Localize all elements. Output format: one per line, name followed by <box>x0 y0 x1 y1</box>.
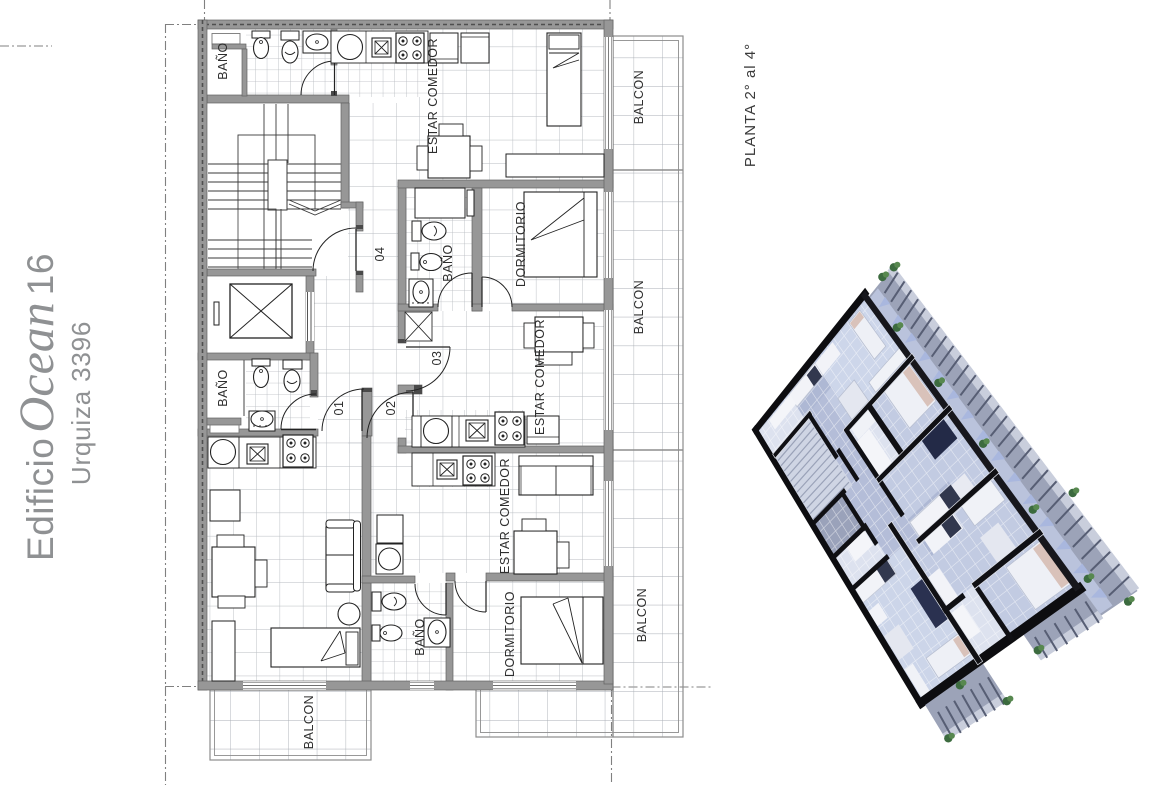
svg-text:BAÑO: BAÑO <box>413 618 427 655</box>
svg-text:04: 04 <box>373 247 387 262</box>
svg-text:01: 01 <box>332 401 346 416</box>
svg-text:BALCON: BALCON <box>302 695 316 749</box>
svg-text:BAÑO: BAÑO <box>216 42 230 79</box>
svg-text:BALCON: BALCON <box>635 588 649 642</box>
svg-text:Urquiza 3396: Urquiza 3396 <box>66 321 96 485</box>
svg-text:PLANTA 2° al 4°: PLANTA 2° al 4° <box>742 43 759 167</box>
svg-text:ESTAR COMEDOR: ESTAR COMEDOR <box>533 319 547 435</box>
svg-text:ESTAR COMEDOR: ESTAR COMEDOR <box>498 458 512 574</box>
svg-text:BALCON: BALCON <box>632 280 646 334</box>
svg-text:DORMITORIO: DORMITORIO <box>503 591 517 677</box>
svg-text:02: 02 <box>384 401 398 416</box>
svg-text:DORMITORIO: DORMITORIO <box>514 201 528 287</box>
svg-text:BAÑO: BAÑO <box>441 244 455 281</box>
svg-text:03: 03 <box>430 351 444 366</box>
svg-text:BALCON: BALCON <box>632 70 646 124</box>
svg-text:ESTAR COMEDOR: ESTAR COMEDOR <box>426 38 440 154</box>
svg-text:BAÑO: BAÑO <box>216 369 230 406</box>
